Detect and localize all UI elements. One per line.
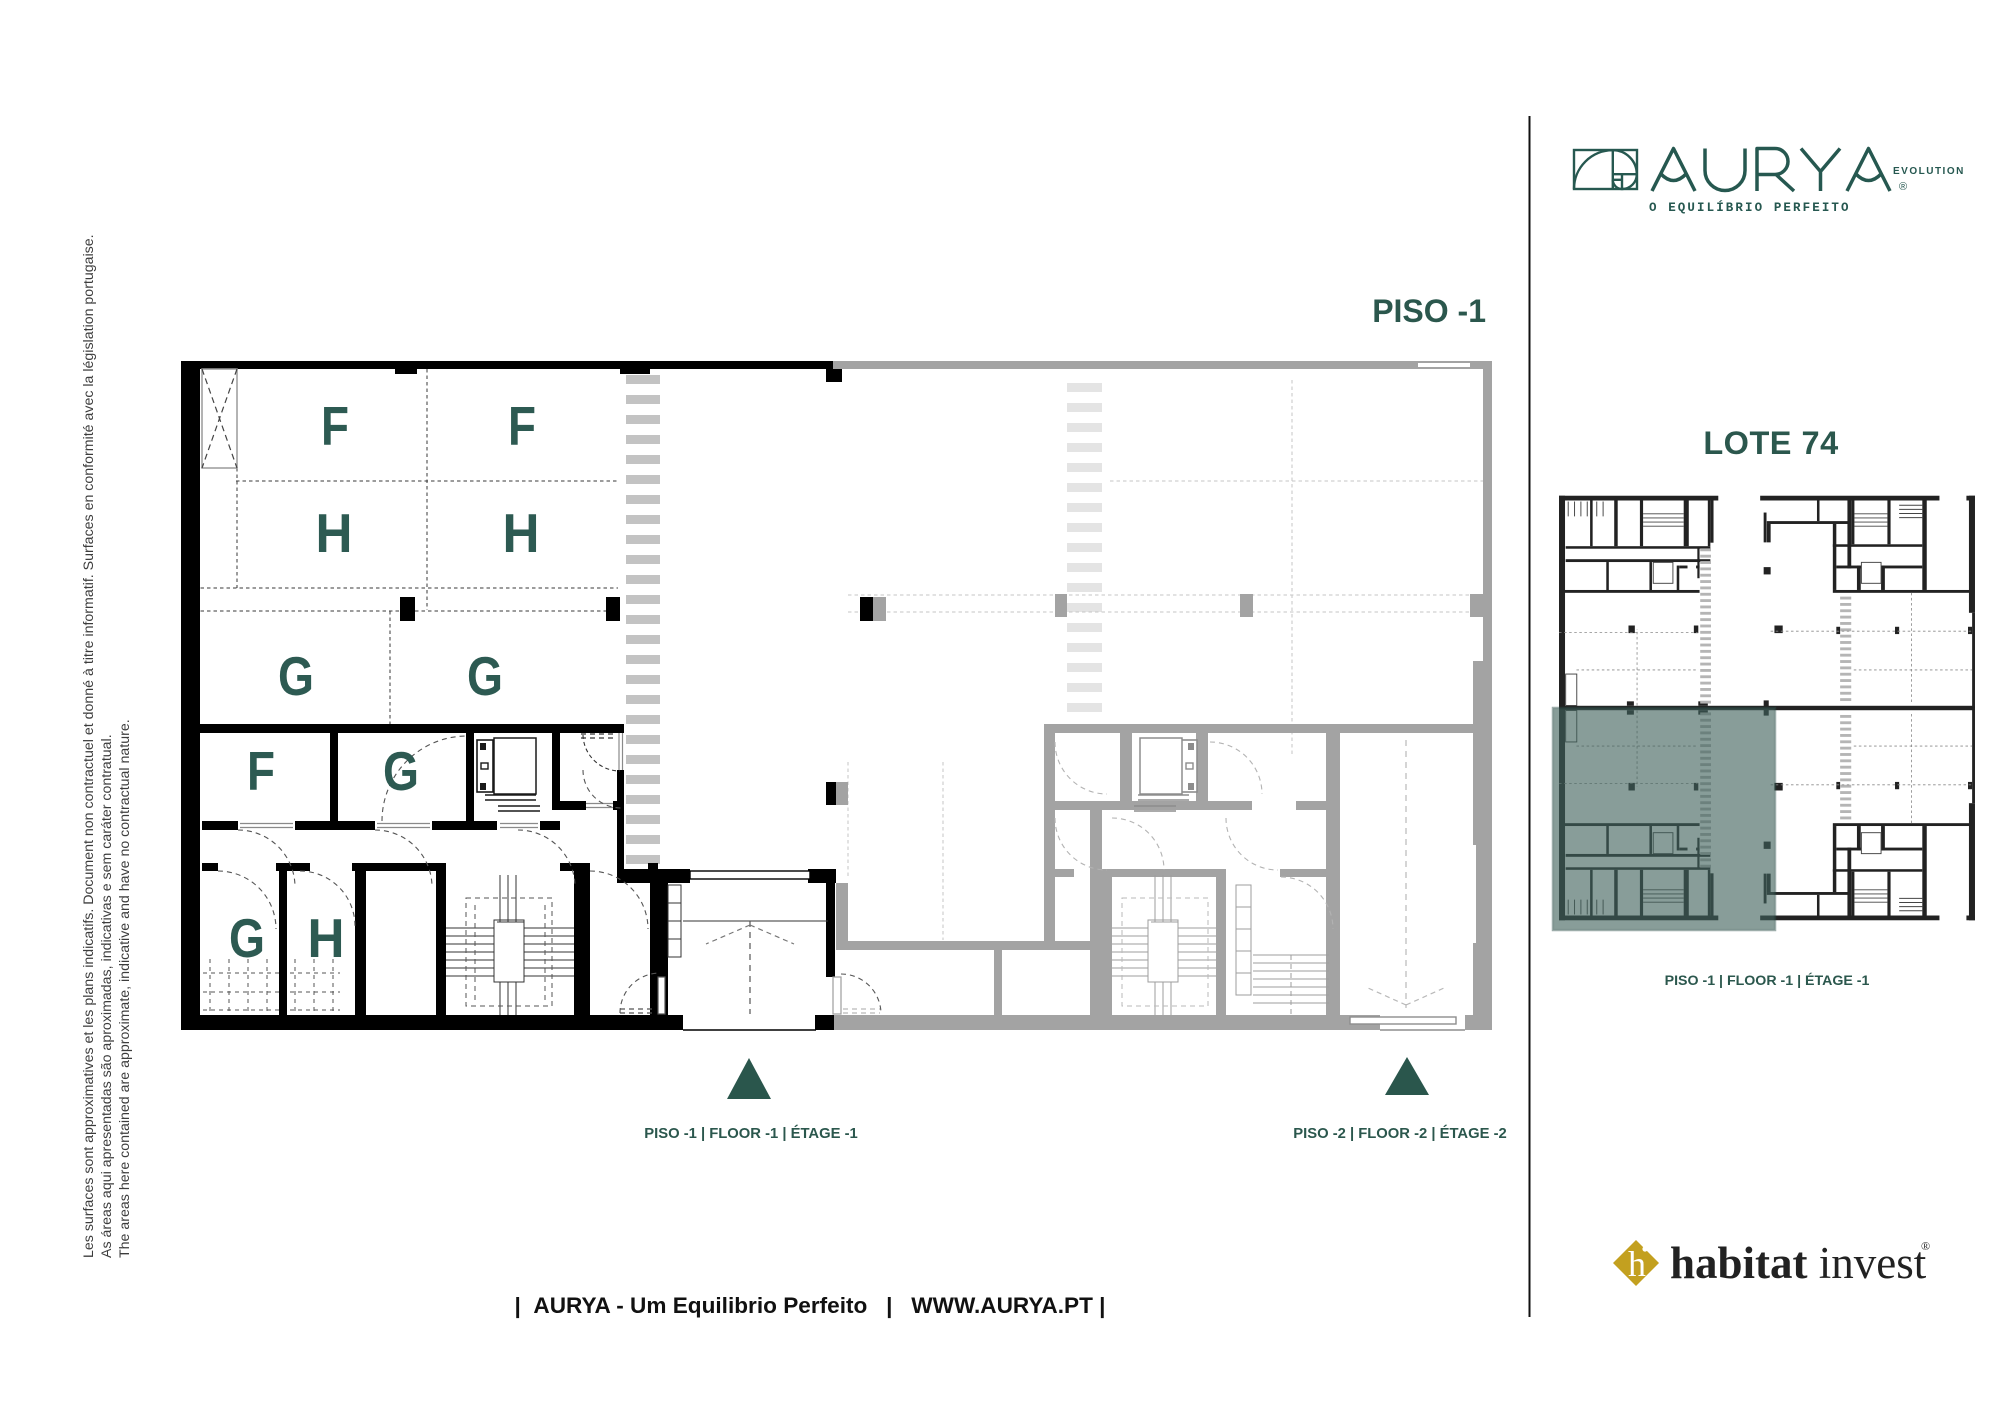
svg-text:®: ®: [1899, 181, 1907, 193]
svg-text:®: ®: [1921, 1239, 1930, 1253]
svg-text:F: F: [247, 740, 275, 802]
svg-text:PISO -1: PISO -1: [1372, 293, 1486, 329]
svg-text:| AURYA - Um Equilibrio Perfe: | AURYA - Um Equilibrio Perfeito | WWW.A…: [515, 1293, 1106, 1318]
svg-text:G: G: [229, 907, 265, 969]
svg-text:PISO -2 | FLOOR -2 | ÉTAGE -2: PISO -2 | FLOOR -2 | ÉTAGE -2: [1293, 1125, 1507, 1142]
svg-text:habitat invest: habitat invest: [1670, 1238, 1927, 1288]
svg-text:G: G: [383, 740, 419, 802]
svg-text:PISO -1 | FLOOR -1 | ÉTAGE -1: PISO -1 | FLOOR -1 | ÉTAGE -1: [1665, 972, 1870, 989]
svg-text:PISO -1 | FLOOR -1 | ÉTAGE -1: PISO -1 | FLOOR -1 | ÉTAGE -1: [644, 1125, 858, 1142]
svg-text:H: H: [308, 907, 345, 969]
svg-text:F: F: [508, 395, 536, 457]
svg-text:G: G: [278, 645, 314, 707]
svg-text:F: F: [321, 395, 349, 457]
svg-text:Les surfaces sont approximativ: Les surfaces sont approximatives et les …: [81, 234, 97, 1258]
svg-text:O EQUILÍBRIO PERFEITO: O EQUILÍBRIO PERFEITO: [1649, 200, 1851, 215]
svg-text:G: G: [467, 645, 503, 707]
svg-text:H: H: [503, 502, 540, 564]
svg-text:LOTE 74: LOTE 74: [1703, 425, 1838, 461]
svg-text:As áreas aqui apresentadas são: As áreas aqui apresentadas são aproximad…: [99, 734, 115, 1258]
svg-text:The areas here contained are a: The areas here contained are approximate…: [117, 719, 133, 1258]
svg-text:H: H: [316, 502, 353, 564]
svg-text:EVOLUTION: EVOLUTION: [1893, 166, 1965, 177]
